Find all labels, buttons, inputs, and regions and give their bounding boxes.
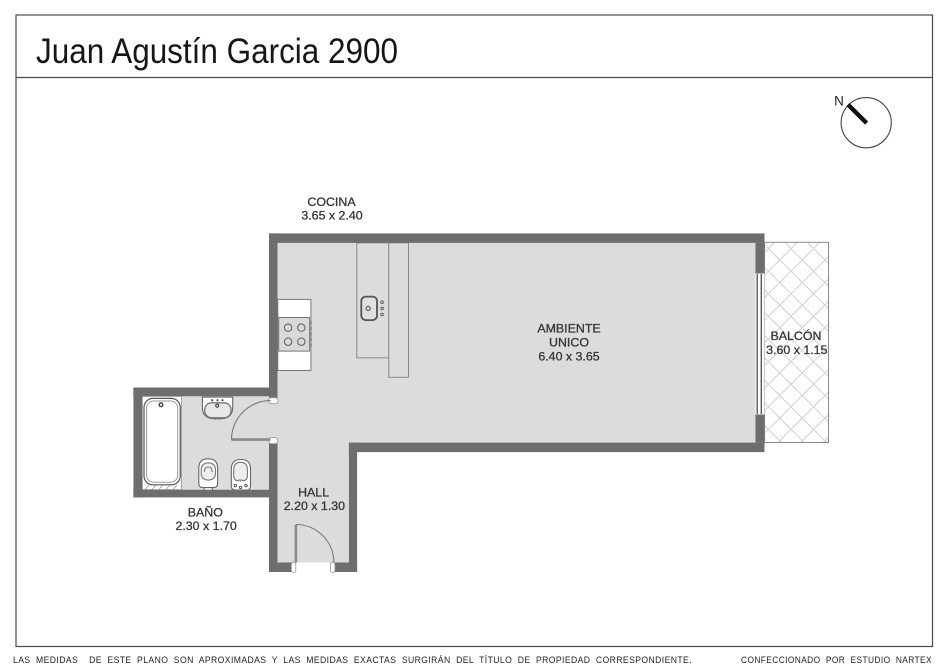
svg-text:BAÑO: BAÑO xyxy=(188,506,223,520)
svg-text:UNICO: UNICO xyxy=(549,335,589,349)
svg-text:AMBIENTE: AMBIENTE xyxy=(537,322,600,336)
svg-text:HALL: HALL xyxy=(298,485,329,499)
svg-text:Juan Agustín Garcia 2900: Juan Agustín Garcia 2900 xyxy=(36,32,398,71)
svg-text:2.20 x 1.30: 2.20 x 1.30 xyxy=(284,499,345,513)
svg-text:N: N xyxy=(834,94,844,109)
svg-text:3.60 x 1.15: 3.60 x 1.15 xyxy=(766,343,827,357)
svg-text:6.40 x 3.65: 6.40 x 3.65 xyxy=(538,349,599,363)
svg-text:COCINA: COCINA xyxy=(307,195,356,209)
svg-text:LAS MEDIDAS DE ESTE PLANO SON: LAS MEDIDAS DE ESTE PLANO SON APROXIMADA… xyxy=(13,655,692,666)
svg-text:2.30 x 1.70: 2.30 x 1.70 xyxy=(175,519,236,533)
svg-text:3.65 x 2.40: 3.65 x 2.40 xyxy=(301,209,362,223)
svg-text:BALCÓN: BALCÓN xyxy=(771,328,822,343)
svg-text:CONFECCIONADO POR ESTUDIO NART: CONFECCIONADO POR ESTUDIO NARTEX xyxy=(741,655,932,666)
